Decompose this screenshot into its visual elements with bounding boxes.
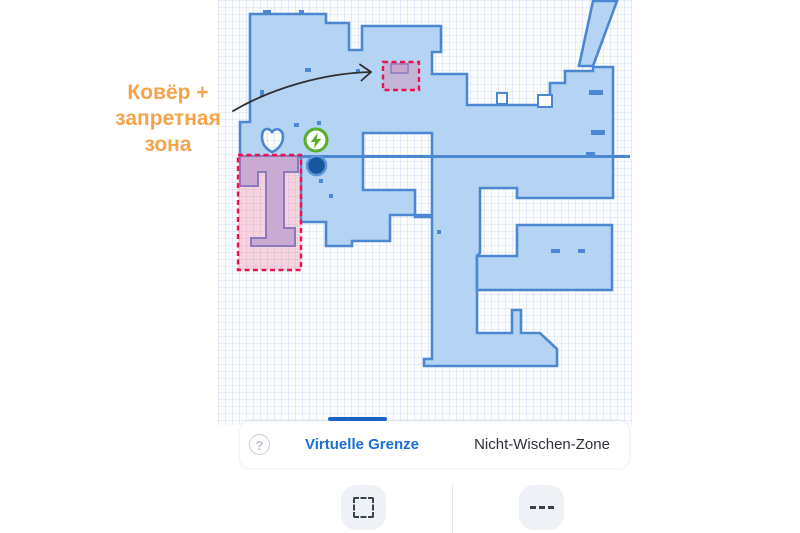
annotation-label: Ковёр + запретная зона (106, 80, 230, 158)
robot-position-marker (307, 156, 326, 175)
robot-map-canvas[interactable] (218, 0, 632, 425)
floorplan-svg (218, 0, 632, 425)
charger-lightning-icon (305, 129, 327, 151)
add-rectangle-zone-button[interactable] (341, 485, 386, 530)
floorplan-right-room (477, 225, 612, 290)
zone-mode-sheet: ? Virtuelle Grenze Nicht-Wischen-Zone (240, 421, 629, 468)
tab-no-mop-zone[interactable]: Nicht-Wischen-Zone (474, 421, 610, 468)
tab-virtual-boundary[interactable]: Virtuelle Grenze (305, 421, 419, 468)
zone-toolbar (0, 468, 800, 533)
floorplan-hallway-strip (579, 1, 617, 66)
add-line-boundary-button[interactable] (519, 485, 564, 530)
app-screen: Ковёр + запретная зона ? Virtuelle Grenz… (0, 0, 800, 533)
dashed-rectangle-icon (353, 497, 374, 518)
no-go-zone-left-room[interactable] (238, 155, 301, 270)
toolbar-divider (452, 484, 453, 533)
help-icon[interactable]: ? (249, 434, 270, 455)
dashed-line-icon (530, 506, 554, 509)
no-go-zone-carpet[interactable] (383, 62, 419, 90)
